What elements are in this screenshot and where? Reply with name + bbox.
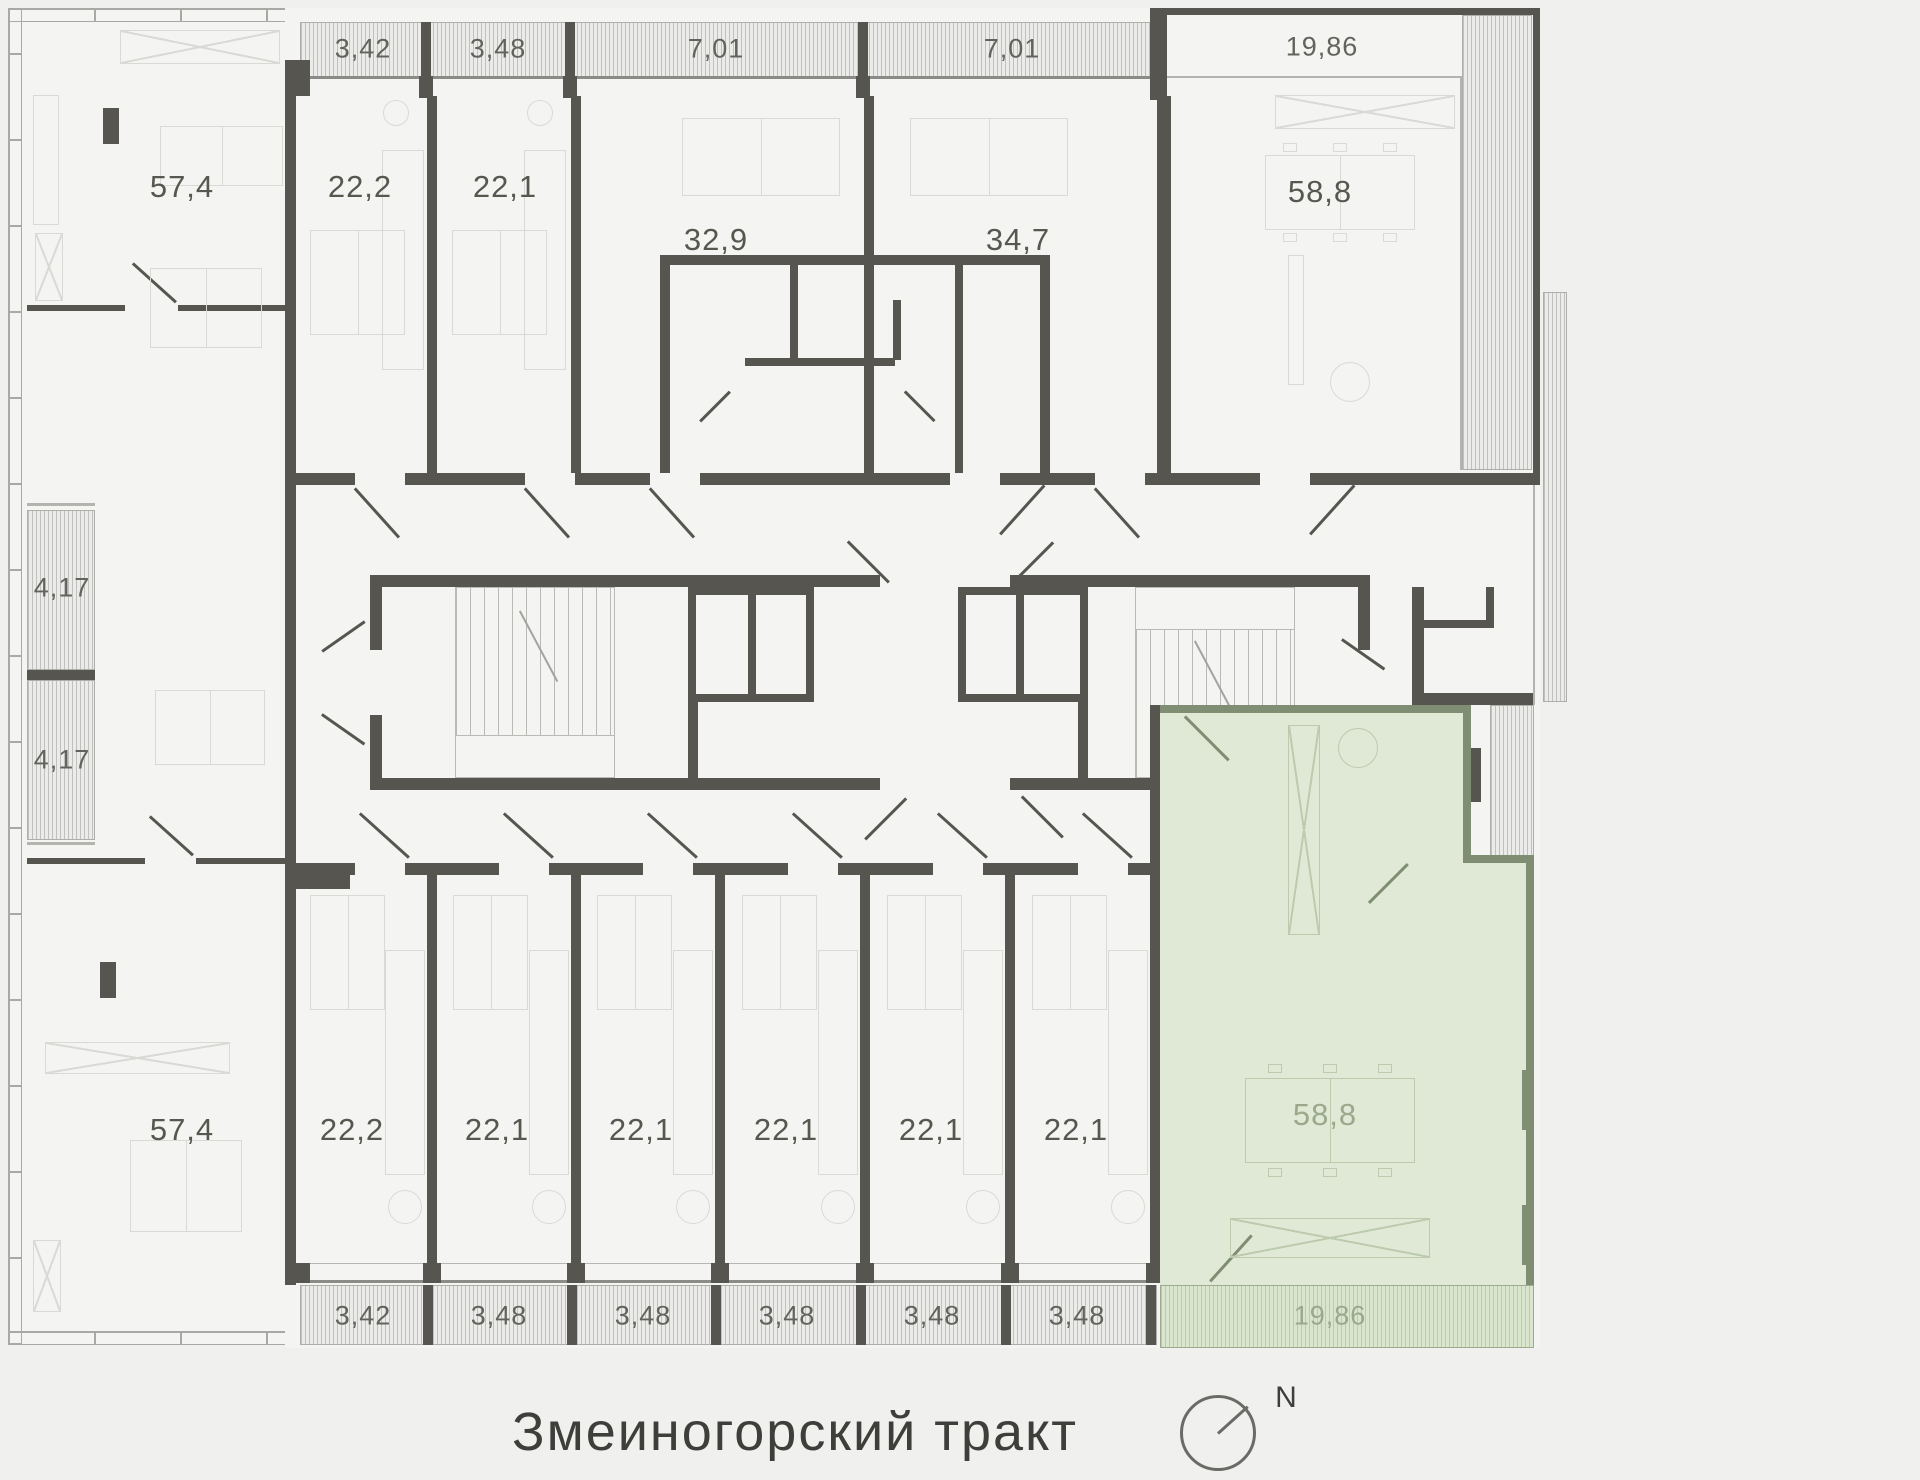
- balcony-label: 3,42: [335, 34, 392, 65]
- north-label: N: [1275, 1381, 1297, 1415]
- corridor-wall: [700, 473, 950, 485]
- unit-divider: [715, 875, 725, 1263]
- pouf: [966, 1190, 1000, 1224]
- unit-divider: [1150, 8, 1167, 100]
- balcony-divider: [423, 1285, 433, 1345]
- wall-corner: [296, 875, 350, 889]
- chair: [1283, 143, 1297, 152]
- core-wall-right: [1358, 587, 1370, 650]
- pouf: [1111, 1190, 1145, 1224]
- desk: [910, 118, 1068, 196]
- unit-divider: [1150, 705, 1160, 875]
- balcony-label: 3,48: [470, 34, 527, 65]
- corridor-wall: [838, 863, 933, 875]
- glazing-line: [1460, 76, 1462, 470]
- exterior-glazing-strip: [1543, 292, 1567, 702]
- area-label: 34,7: [986, 222, 1050, 258]
- balcony-divider: [1001, 1285, 1011, 1345]
- balcony-edge: [27, 842, 95, 845]
- balcony-label: 3,48: [904, 1301, 961, 1332]
- area-label: 22,2: [320, 1112, 384, 1148]
- highlight-wall-top: [1160, 705, 1471, 713]
- chair: [1268, 1064, 1282, 1073]
- wall-segment: [1486, 587, 1494, 628]
- window-pier: [567, 1263, 585, 1283]
- annex-curtain-wall-bottom: [8, 1331, 285, 1345]
- window-pier: [856, 76, 870, 98]
- wardrobe: [1230, 1218, 1430, 1258]
- bed: [673, 950, 713, 1175]
- pouf: [1338, 728, 1378, 768]
- window-pier: [296, 60, 310, 96]
- outer-wall-right: [1533, 8, 1540, 485]
- core-wall-left: [370, 715, 382, 778]
- sanitary-wall: [790, 265, 798, 365]
- pouf: [1330, 362, 1370, 402]
- area-label: 22,2: [328, 169, 392, 205]
- balcony-label: 3,48: [759, 1301, 816, 1332]
- wall-segment: [1424, 620, 1494, 628]
- corridor-wall: [285, 473, 355, 485]
- annex-partition: [27, 305, 125, 311]
- unit-divider: [1157, 96, 1171, 473]
- wall-stub: [1078, 700, 1088, 778]
- annex-curtain-wall-top: [8, 8, 285, 22]
- pouf: [383, 100, 409, 126]
- wardrobe: [120, 30, 280, 64]
- corridor-wall: [1145, 473, 1260, 485]
- desk: [742, 895, 817, 1010]
- area-label: 22,1: [899, 1112, 963, 1148]
- window-pier: [419, 76, 433, 98]
- unit-divider: [427, 96, 437, 473]
- balcony-divider: [567, 1285, 577, 1345]
- balcony-edge: [27, 503, 95, 506]
- cabinet: [33, 95, 59, 225]
- stair-landing: [456, 735, 614, 777]
- sofa: [1288, 255, 1304, 385]
- balcony-divider: [711, 1285, 721, 1345]
- floor-plan: 57,4 57,4 4,17 4,17 3,42 3,48 7,01 7,01 …: [0, 0, 1920, 1480]
- wardrobe: [35, 233, 63, 301]
- balcony-divider: [856, 1285, 866, 1345]
- window-pier: [563, 76, 577, 98]
- annex-curtain-wall-left: [8, 8, 22, 1345]
- window-pier: [296, 1263, 310, 1283]
- glazing-line: [1533, 485, 1535, 705]
- wall-stub: [103, 108, 119, 144]
- outer-wall-top: [1157, 8, 1540, 15]
- corridor-wall: [1000, 473, 1095, 485]
- area-label: 22,1: [473, 169, 537, 205]
- area-label: 22,1: [609, 1112, 673, 1148]
- window-pier: [856, 1263, 874, 1283]
- curtain-glazing: [1462, 15, 1532, 470]
- window-pier: [1522, 1205, 1534, 1265]
- corridor-wall: [1310, 473, 1540, 485]
- window-pier: [423, 1263, 441, 1283]
- annex-partition: [27, 858, 145, 864]
- corridor-wall: [405, 863, 499, 875]
- balcony-label: 7,01: [688, 34, 745, 65]
- highlight-wall: [1463, 855, 1534, 863]
- window-pier: [711, 1263, 729, 1283]
- pouf: [532, 1190, 566, 1224]
- area-label-annex-top: 57,4: [150, 169, 214, 205]
- wall-stub: [100, 962, 116, 998]
- chair: [1323, 1168, 1337, 1177]
- unit-divider: [1005, 875, 1015, 1263]
- window-pier: [1001, 1263, 1019, 1283]
- curtain-glazing: [1490, 705, 1534, 863]
- chair: [1378, 1064, 1392, 1073]
- unit-divider: [427, 875, 437, 1263]
- unit-divider: [1150, 875, 1160, 1263]
- balcony-label: 3,48: [1049, 1301, 1106, 1332]
- wardrobe: [33, 1240, 61, 1312]
- desk: [155, 690, 265, 765]
- wardrobe: [45, 1042, 230, 1074]
- balcony-divider: [565, 22, 575, 78]
- wall-stub: [688, 700, 698, 778]
- desk: [310, 895, 385, 1010]
- chair: [1323, 1064, 1337, 1073]
- highlighted-balcony-label: 19,86: [1294, 1301, 1367, 1332]
- stair-landing: [1136, 588, 1294, 630]
- sanitary-wall: [660, 265, 670, 473]
- balcony-divider: [421, 22, 431, 78]
- area-label: 58,8: [1288, 174, 1352, 210]
- bed: [963, 950, 1003, 1175]
- desk: [887, 895, 962, 1010]
- bed: [385, 950, 425, 1175]
- loggia-label: 19,86: [1286, 32, 1359, 63]
- desk: [150, 268, 262, 348]
- balcony-label: 3,48: [615, 1301, 672, 1332]
- area-label: 22,1: [465, 1112, 529, 1148]
- shelving: [1288, 725, 1320, 935]
- chair: [1268, 1168, 1282, 1177]
- pouf: [821, 1190, 855, 1224]
- core-wall-top: [1010, 575, 1370, 587]
- elevator-divider: [1016, 587, 1024, 702]
- wardrobe: [1275, 95, 1455, 129]
- desk: [682, 118, 840, 196]
- corridor-wall: [693, 863, 788, 875]
- chair: [1383, 143, 1397, 152]
- chair: [1333, 233, 1347, 242]
- loggia-sill: [1167, 76, 1463, 78]
- window-pier: [1522, 1070, 1534, 1130]
- wall-segment: [1412, 693, 1534, 705]
- desk: [597, 895, 672, 1010]
- desk: [452, 230, 547, 335]
- highlighted-area-label: 58,8: [1293, 1097, 1357, 1133]
- bed: [1108, 950, 1148, 1175]
- unit-divider: [571, 96, 581, 473]
- sanitary-wall: [893, 300, 901, 360]
- unit-divider: [571, 875, 581, 1263]
- corridor-wall: [983, 863, 1078, 875]
- balcony-divider: [858, 22, 868, 78]
- area-label: 32,9: [684, 222, 748, 258]
- sanitary-wall: [745, 358, 895, 366]
- desk: [1032, 895, 1107, 1010]
- chair: [1283, 233, 1297, 242]
- bed: [529, 950, 569, 1175]
- corridor-wall: [405, 473, 525, 485]
- desk: [130, 1140, 242, 1232]
- annex-partition: [196, 858, 285, 864]
- corridor-wall: [285, 863, 355, 875]
- balcony-label: 3,48: [471, 1301, 528, 1332]
- sanitary-wall: [1040, 265, 1050, 473]
- desk: [310, 230, 405, 335]
- desk: [453, 895, 528, 1010]
- balcony-label: 4,17: [34, 745, 91, 776]
- pouf: [527, 100, 553, 126]
- corridor-wall: [549, 863, 643, 875]
- sanitary-wall: [955, 265, 963, 473]
- area-label: 22,1: [1044, 1112, 1108, 1148]
- chair: [1333, 143, 1347, 152]
- pouf: [676, 1190, 710, 1224]
- wall-segment: [1412, 587, 1424, 705]
- chair: [1378, 1168, 1392, 1177]
- core-wall-top: [370, 575, 880, 587]
- balcony-divider: [1146, 1285, 1156, 1345]
- balcony-label: 4,17: [34, 573, 91, 604]
- chair: [1383, 233, 1397, 242]
- street-name-label: Змеиногорский тракт: [512, 1401, 1078, 1463]
- pouf: [388, 1190, 422, 1224]
- area-label-annex-bottom: 57,4: [150, 1112, 214, 1148]
- unit-divider: [864, 96, 874, 473]
- highlight-wall: [1463, 705, 1471, 863]
- core-wall-left: [370, 587, 382, 650]
- core-wall-bottom: [370, 778, 880, 790]
- balcony-label: 3,42: [335, 1301, 392, 1332]
- elevator-divider: [748, 587, 756, 702]
- area-label: 22,1: [754, 1112, 818, 1148]
- balcony-divider: [27, 670, 95, 680]
- corridor-wall: [575, 473, 650, 485]
- balcony-label: 7,01: [984, 34, 1041, 65]
- party-wall: [285, 60, 296, 1285]
- bed: [818, 950, 858, 1175]
- unit-divider: [860, 875, 870, 1263]
